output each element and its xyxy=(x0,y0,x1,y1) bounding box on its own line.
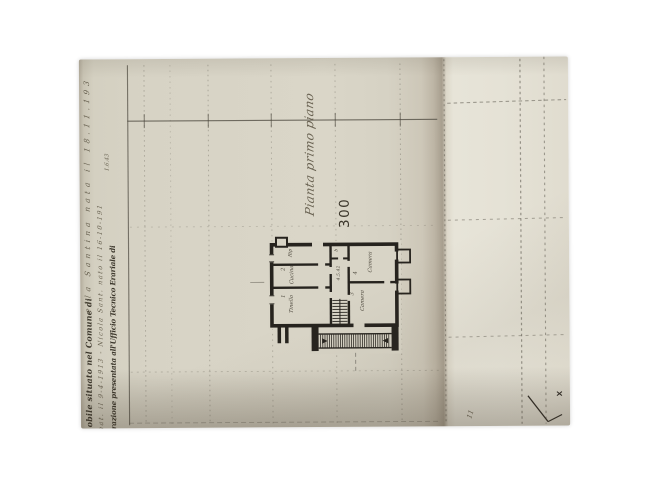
bottom-shadow xyxy=(79,57,570,429)
document-photo: obile situato nel Comune di ella Santina… xyxy=(79,57,570,429)
photo-page: obile situato nel Comune di ella Santina… xyxy=(0,0,648,492)
